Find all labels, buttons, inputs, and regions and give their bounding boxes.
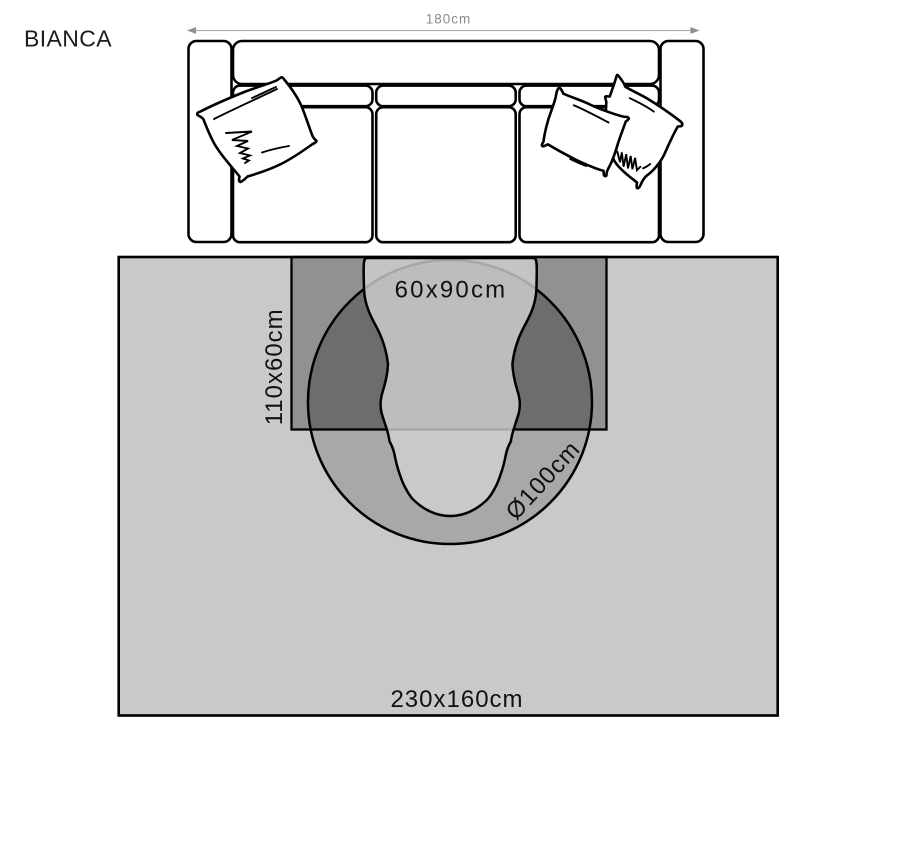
- svg-text:60x90cm: 60x90cm: [395, 277, 508, 304]
- svg-text:230x160cm: 230x160cm: [390, 686, 523, 713]
- svg-text:110x60cm: 110x60cm: [261, 308, 288, 425]
- svg-text:BIANCA: BIANCA: [24, 26, 112, 52]
- svg-text:180cm: 180cm: [426, 12, 472, 27]
